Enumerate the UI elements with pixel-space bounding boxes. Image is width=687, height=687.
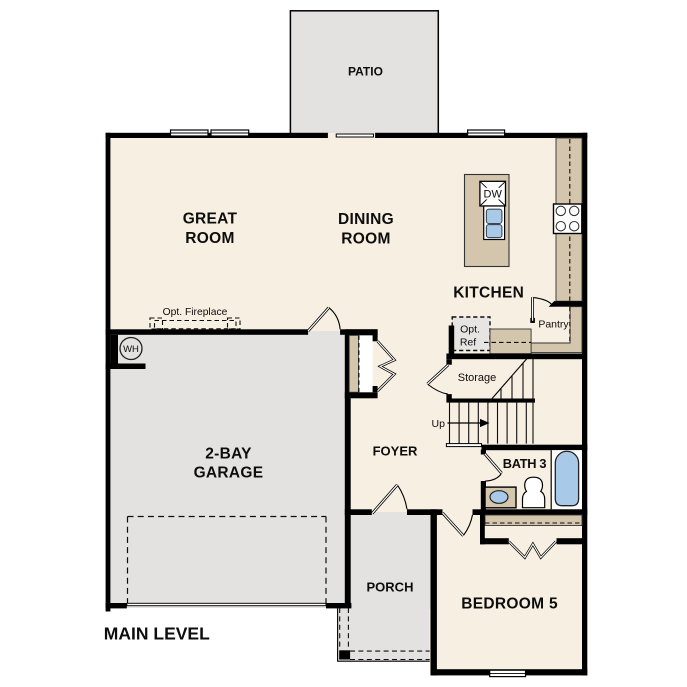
svg-text:Ref: Ref: [460, 336, 476, 348]
svg-text:DINING: DINING: [338, 211, 394, 228]
svg-text:KITCHEN: KITCHEN: [453, 285, 524, 302]
svg-text:GARAGE: GARAGE: [194, 465, 264, 482]
svg-text:PORCH: PORCH: [367, 579, 414, 594]
svg-text:Pantry: Pantry: [538, 318, 569, 330]
svg-text:PATIO: PATIO: [348, 65, 383, 79]
svg-text:WH: WH: [123, 344, 139, 355]
svg-text:Storage: Storage: [458, 372, 497, 384]
svg-text:DW: DW: [484, 189, 503, 201]
svg-text:2-BAY: 2-BAY: [205, 445, 252, 462]
svg-text:BATH 3: BATH 3: [503, 456, 547, 471]
svg-text:ROOM: ROOM: [185, 230, 234, 247]
svg-text:FOYER: FOYER: [373, 443, 418, 458]
svg-text:ROOM: ROOM: [341, 231, 390, 248]
svg-text:MAIN LEVEL: MAIN LEVEL: [104, 624, 210, 644]
svg-text:Opt. Fireplace: Opt. Fireplace: [163, 307, 228, 318]
svg-text:BEDROOM 5: BEDROOM 5: [461, 596, 558, 613]
svg-text:Up: Up: [432, 418, 446, 430]
svg-text:GREAT: GREAT: [183, 211, 238, 228]
svg-text:Opt.: Opt.: [460, 323, 480, 335]
